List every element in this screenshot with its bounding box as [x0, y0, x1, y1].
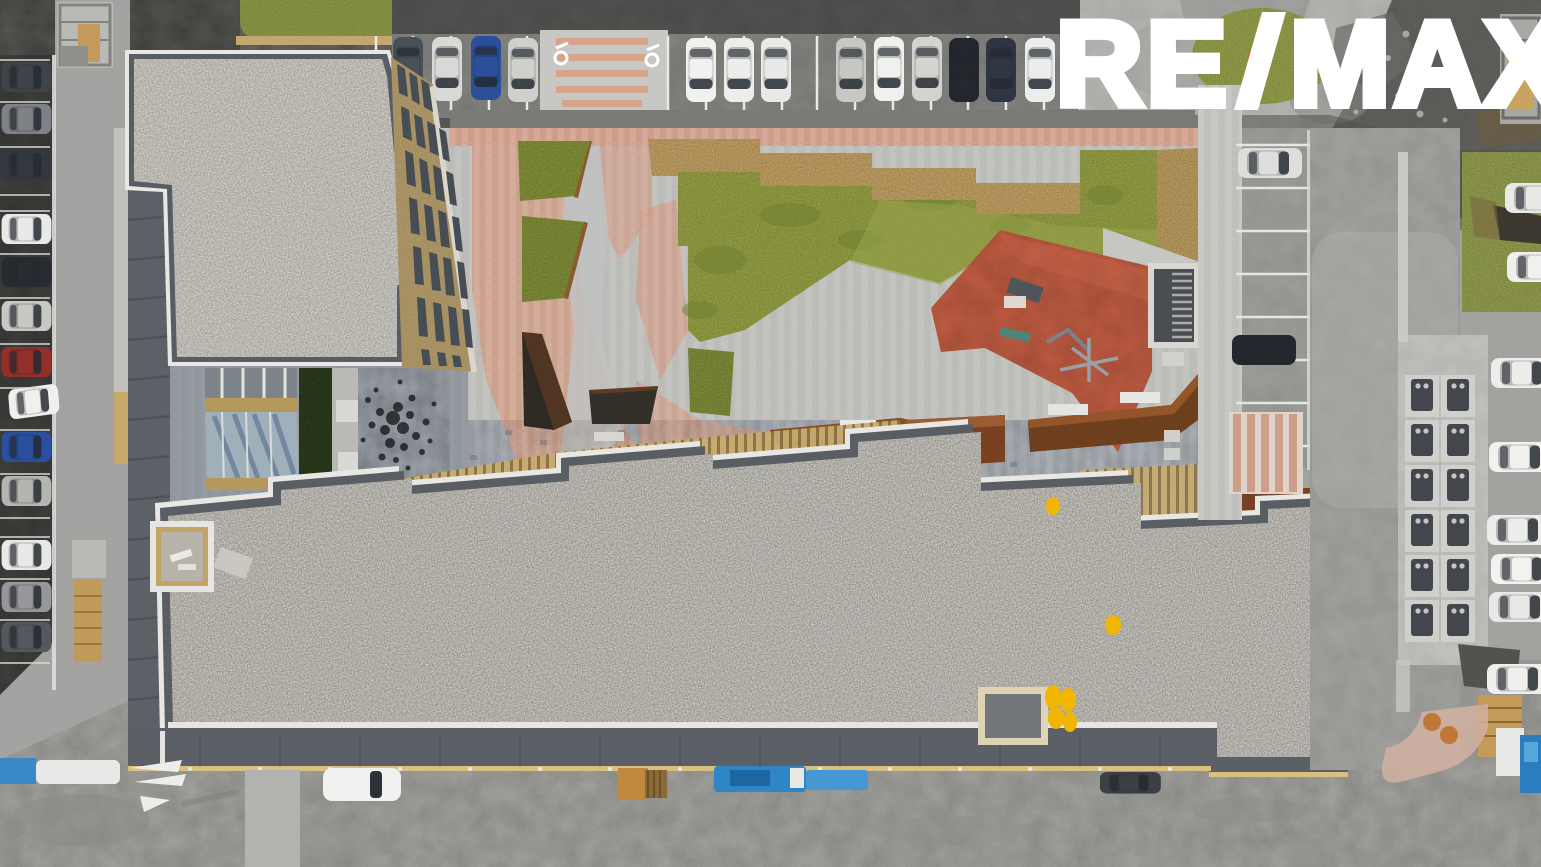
svg-text:RE: RE [1056, 0, 1231, 131]
svg-text:MAX: MAX [1290, 0, 1541, 131]
